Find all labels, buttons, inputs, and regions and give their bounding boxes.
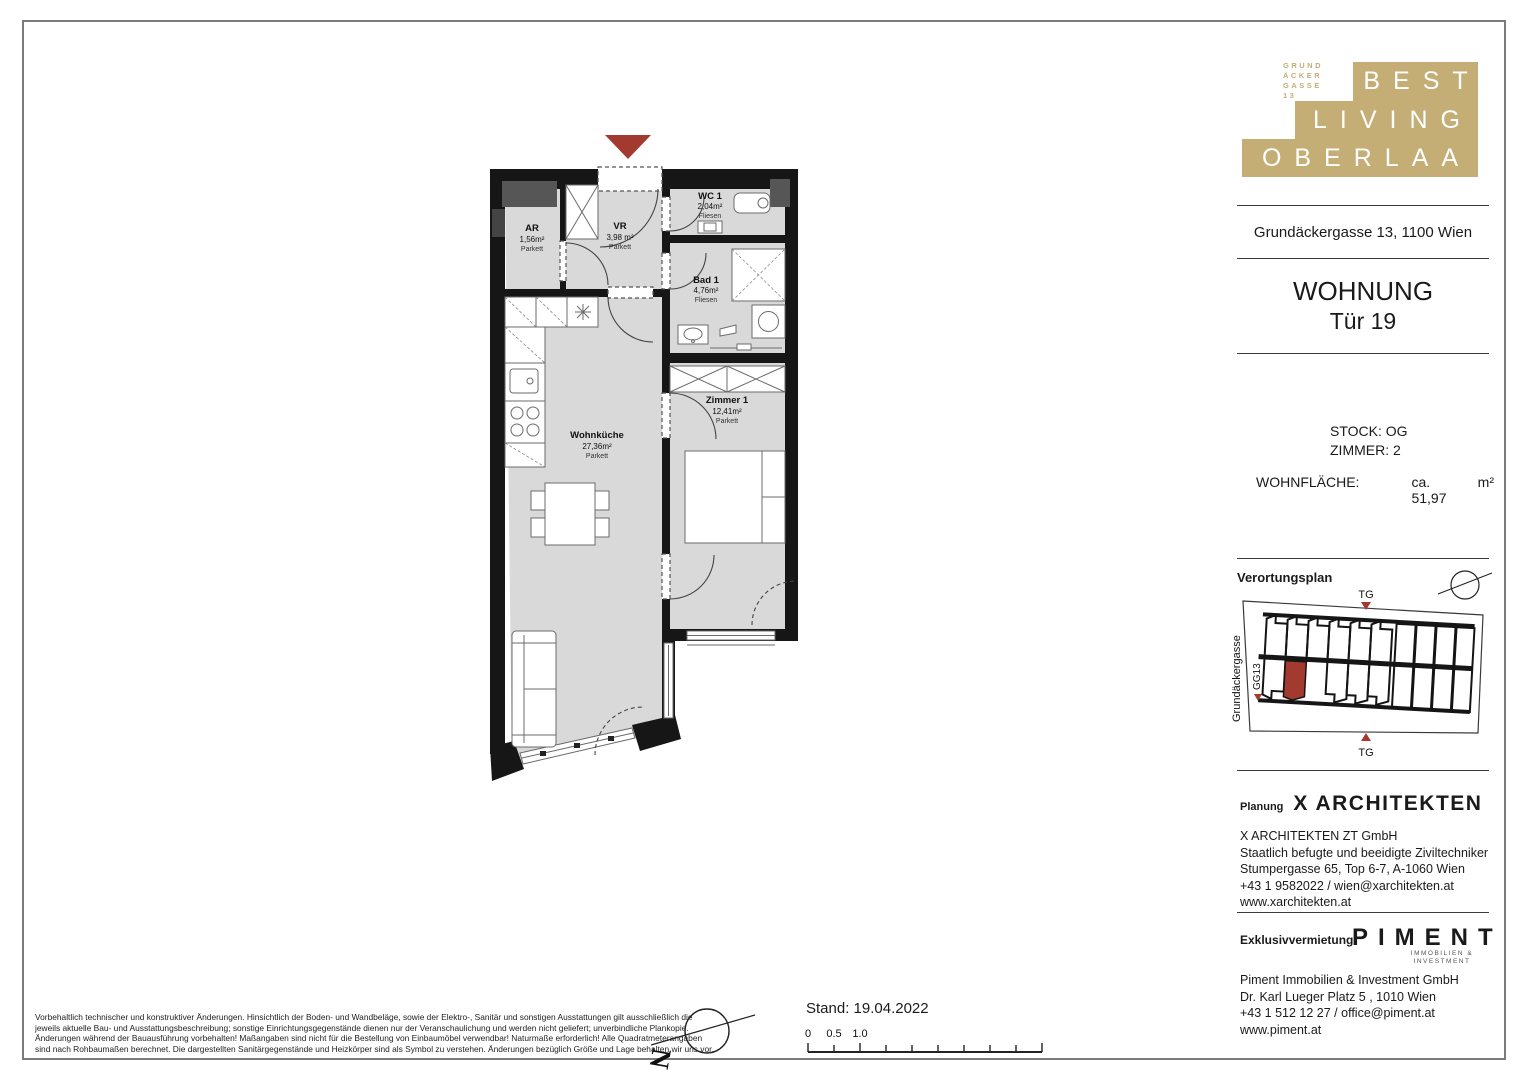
piment-sub-label: IMMOBILIEN & INVESTMENT (1387, 950, 1497, 966)
scale-tick-label: 1.0 (852, 1028, 867, 1040)
unit-door: Tür 19 (1237, 308, 1489, 335)
vr-closet (566, 185, 598, 239)
area-unit: m² (1478, 474, 1494, 506)
room-area: 4,76m² (694, 286, 719, 295)
living-area-row: WOHNFLÄCHE: ca. 51,97 m² (1256, 474, 1494, 506)
room-floor: Parkett (609, 244, 631, 251)
room-floor: Parkett (716, 418, 738, 425)
divider (1237, 558, 1489, 559)
logo-side-text: GRUND ÄCKER GASSE 13 (1283, 61, 1323, 101)
logo-row-best: BEST (1353, 62, 1478, 101)
architect-contact: X ARCHITEKTEN ZT GmbH Staatlich befugte … (1240, 828, 1488, 911)
unit-zimmer: ZIMMER: 2 (1330, 442, 1401, 458)
planung-label: Planung (1240, 801, 1283, 813)
room-area: 2,04m² (698, 202, 723, 211)
north-icon (1438, 571, 1492, 599)
room-name: Wohnküche (570, 430, 624, 441)
north-letter: N (645, 1046, 677, 1070)
room-name: Zimmer 1 (706, 395, 749, 406)
plan-date: Stand: 19.04.2022 (806, 1000, 929, 1017)
project-address: Grundäckergasse 13, 1100 Wien (1237, 224, 1489, 241)
north-arrow-icon: N (645, 995, 765, 1070)
architect-firm: X ARCHITEKTEN (1293, 792, 1482, 816)
area-value: ca. 51,97 (1411, 474, 1459, 506)
tg-bottom-arrow-icon (1361, 733, 1371, 741)
floorplan-drawing: AR 1,56m² Parkett VR 3,98 m² Parkett WC … (482, 131, 814, 825)
unit-title: WOHNUNG (1237, 276, 1489, 307)
street-label: Grundäckergasse (1231, 635, 1243, 722)
entrance-arrow-icon (605, 135, 651, 159)
tg-top-label: TG (1358, 589, 1373, 601)
room-name: VR (613, 221, 626, 232)
room-area: 1,56m² (520, 235, 545, 244)
scale-bar: 0 0.5 1.0 (800, 1026, 1050, 1058)
logo-row-oberlaa: OBERLAA (1242, 139, 1478, 177)
gg13-label: GG13 (1252, 663, 1263, 690)
unit-stock: STOCK: OG (1330, 423, 1408, 439)
room-floor: Fliesen (695, 297, 718, 304)
divider (1237, 258, 1489, 259)
room-area: 27,36m² (582, 442, 612, 451)
logo-row-living: LIVING (1295, 101, 1478, 139)
tg-bottom-label: TG (1358, 747, 1373, 759)
planung-header: Planung X ARCHITEKTEN (1240, 792, 1482, 816)
vermietung-label: Exklusivvermietung (1240, 933, 1353, 947)
sofa (512, 631, 556, 747)
divider (1237, 770, 1489, 771)
room-name: Bad 1 (693, 275, 720, 286)
area-label: WOHNFLÄCHE: (1256, 474, 1359, 506)
room-name: WC 1 (698, 191, 722, 202)
room-floor: Parkett (586, 453, 608, 460)
piment-contact: Piment Immobilien & Investment GmbH Dr. … (1240, 972, 1459, 1038)
room-floor: Parkett (521, 246, 543, 253)
scale-tick-label: 0 (805, 1028, 811, 1040)
room-area: 12,41m² (712, 407, 742, 416)
building-rows (1256, 612, 1475, 714)
room-name: AR (525, 223, 539, 234)
scale-tick-label: 0.5 (826, 1028, 841, 1040)
divider (1237, 205, 1489, 206)
room-floor: Fliesen (699, 213, 722, 220)
verortungsplan-map: Grundäckergasse TG TG GG13 (1228, 560, 1508, 770)
piment-firm: PIMENT (1352, 924, 1503, 952)
room-area: 3,98 m² (606, 233, 633, 242)
highlighted-unit (1283, 661, 1306, 701)
divider (1237, 353, 1489, 354)
divider (1237, 912, 1489, 913)
